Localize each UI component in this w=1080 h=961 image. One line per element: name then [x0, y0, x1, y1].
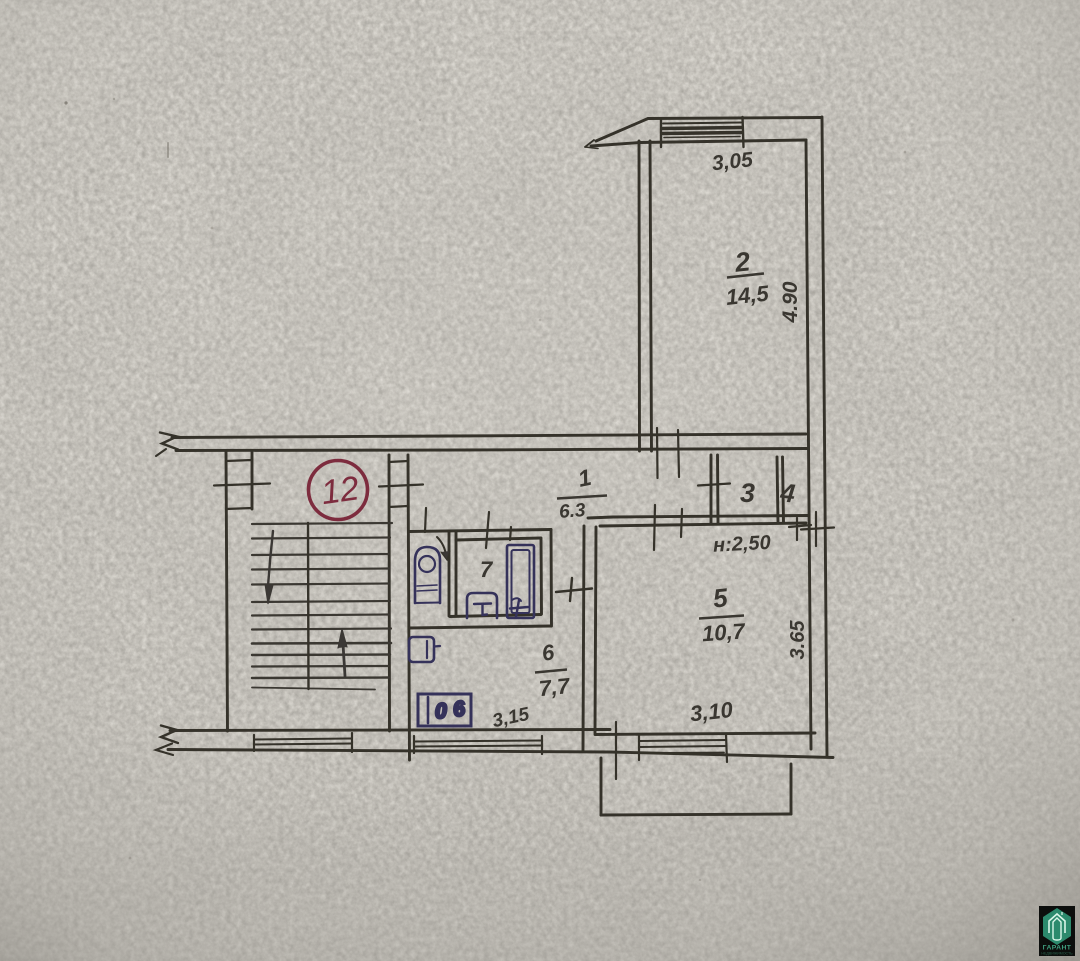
svg-text:НЕДВИЖИМОСТЬ: НЕДВИЖИМОСТЬ: [1041, 952, 1073, 956]
svg-text:14,5: 14,5: [725, 281, 771, 310]
svg-text:10,7: 10,7: [701, 618, 747, 646]
svg-text:0: 0: [434, 700, 447, 724]
svg-text:3.65: 3.65: [787, 620, 809, 660]
svg-text:н:2,50: н:2,50: [713, 532, 772, 557]
svg-text:3,05: 3,05: [711, 148, 754, 175]
svg-text:7,7: 7,7: [538, 673, 573, 701]
svg-text:ГАРАНТ: ГАРАНТ: [1043, 945, 1072, 952]
svg-text:7: 7: [480, 557, 494, 582]
svg-text:6.3: 6.3: [558, 500, 586, 523]
svg-text:12: 12: [319, 469, 362, 512]
svg-text:3,10: 3,10: [689, 697, 735, 726]
svg-text:4.90: 4.90: [779, 281, 802, 323]
svg-text:2: 2: [732, 246, 751, 278]
svg-text:3: 3: [740, 478, 755, 508]
